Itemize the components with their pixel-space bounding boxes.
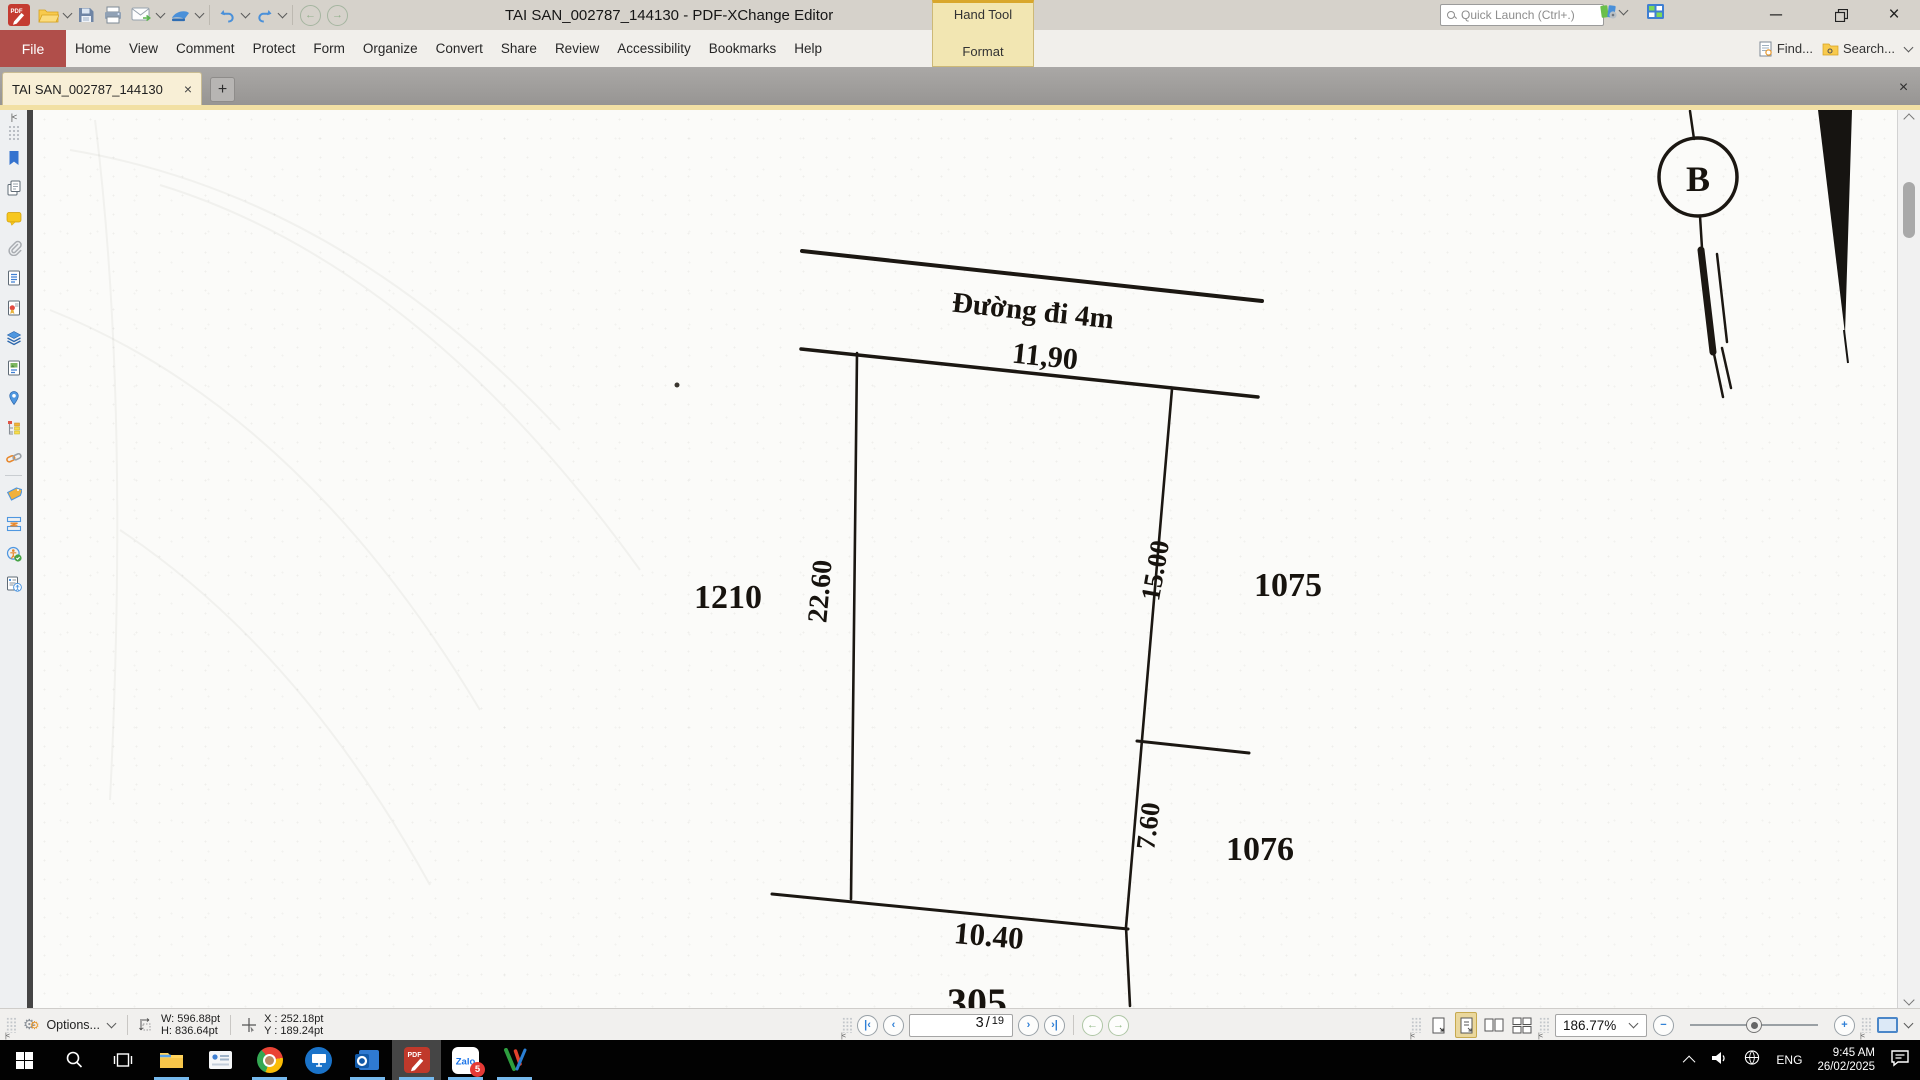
- scan-wedge-mark: [1818, 110, 1852, 334]
- selection-size-readout: W: 596.88pt H: 836.64pt: [161, 1013, 220, 1037]
- window-title: TAI SAN_002787_144130 - PDF-XChange Edit…: [505, 7, 833, 24]
- hand-tool-label[interactable]: Hand Tool: [954, 7, 1012, 22]
- status-drag-handle[interactable]: [6, 1017, 16, 1033]
- search-icon: [1447, 11, 1456, 20]
- width-readout: W: 596.88pt: [161, 1013, 220, 1025]
- dimension-top: 11,90: [1011, 337, 1080, 377]
- dimension-bottom: 10.40: [953, 915, 1026, 956]
- menu-home[interactable]: Home: [66, 41, 120, 56]
- find-button[interactable]: Find...: [1759, 41, 1813, 57]
- zalo-badge: 5: [470, 1062, 485, 1077]
- page-number-input[interactable]: 3 / 19: [909, 1014, 1013, 1037]
- windows-taskbar: PDF Zalo 5 ENG 9:45 AM 26/02/2025: [0, 1040, 1920, 1080]
- thumbnails-icon[interactable]: [5, 179, 23, 197]
- stamp-dropdown-chevron[interactable]: [195, 9, 205, 19]
- taskbar-search-icon[interactable]: [49, 1040, 98, 1080]
- quick-launch-placeholder: Quick Launch (Ctrl+.): [1461, 8, 1575, 22]
- tab-close-icon[interactable]: ×: [184, 82, 192, 96]
- total-pages: 19: [992, 1015, 1004, 1027]
- ink-mark-thin-1: [1717, 254, 1727, 342]
- toolbar-separator: [292, 5, 293, 25]
- content-icon[interactable]: [5, 359, 23, 377]
- content-order-icon[interactable]: [5, 515, 23, 533]
- fields-icon[interactable]: [5, 269, 23, 287]
- document-tab-title: TAI SAN_002787_144130: [12, 82, 163, 97]
- save-icon[interactable]: [73, 3, 99, 27]
- links-icon[interactable]: [5, 449, 23, 467]
- outlook-icon[interactable]: [343, 1040, 392, 1080]
- document-page[interactable]: Đường đi 4m 11,90 22.60 15.00 7.60 10.40…: [33, 110, 1897, 1008]
- layers-icon[interactable]: [5, 329, 23, 347]
- app-logo-icon: PDF: [4, 3, 34, 27]
- cursor-position-icon: [241, 1017, 257, 1033]
- bookmarks-icon[interactable]: [5, 149, 23, 167]
- main-area: |<: [0, 110, 1920, 1008]
- two-page-layout-button[interactable]: [1483, 1012, 1505, 1038]
- menu-form[interactable]: Form: [304, 41, 354, 56]
- menu-protect[interactable]: Protect: [244, 41, 305, 56]
- close-button[interactable]: ×: [1872, 0, 1916, 30]
- structure-icon[interactable]: [5, 419, 23, 437]
- tabbar-close-icon[interactable]: ×: [1892, 76, 1915, 99]
- svg-text:PDF: PDF: [407, 1052, 422, 1059]
- parcel-number-bottom-clipped: 305: [947, 980, 1007, 1008]
- dimension-right-upper: 15.00: [1135, 538, 1175, 603]
- session-icon[interactable]: [1646, 3, 1665, 20]
- options-button[interactable]: Options...: [46, 1018, 100, 1032]
- redo-dropdown-chevron[interactable]: [278, 9, 288, 19]
- find-search-group: Find... Search...: [1759, 30, 1914, 67]
- task-view-icon[interactable]: [98, 1040, 147, 1080]
- continuous-layout-button[interactable]: [1455, 1012, 1477, 1038]
- options-chevron[interactable]: [106, 1019, 116, 1029]
- attachments-icon[interactable]: [5, 239, 23, 257]
- gear-icon: ⚙⚙: [23, 1017, 39, 1033]
- scan-wedge-tail: [1844, 330, 1848, 363]
- document-tab[interactable]: TAI SAN_002787_144130 ×: [2, 72, 202, 105]
- toolbar-overflow-chevron[interactable]: [1904, 42, 1914, 52]
- print-icon[interactable]: [99, 3, 127, 27]
- destinations-icon[interactable]: [5, 389, 23, 407]
- page-navigation-group: |‹ ‹ 3 / 19 › ›| ← →: [842, 1009, 1129, 1041]
- stamp-tool-icon[interactable]: [166, 3, 195, 27]
- zalo-icon[interactable]: Zalo 5: [441, 1040, 490, 1080]
- zoom-out-button[interactable]: −: [1653, 1015, 1674, 1036]
- menu-bookmarks[interactable]: Bookmarks: [700, 41, 786, 56]
- menu-share[interactable]: Share: [492, 41, 546, 56]
- fullscreen-mode-icon[interactable]: [1877, 1017, 1898, 1033]
- new-tab-button[interactable]: +: [210, 77, 235, 102]
- signatures-icon[interactable]: [5, 299, 23, 317]
- pdf-xchange-window: PDF ←: [0, 0, 1920, 1080]
- zoom-level-value: 186.77%: [1563, 1018, 1616, 1033]
- file-explorer-icon[interactable]: [147, 1040, 196, 1080]
- search-button[interactable]: Search...: [1822, 41, 1895, 56]
- clock-time: 9:45 AM: [1833, 1047, 1875, 1059]
- history-forward-icon[interactable]: →: [327, 5, 348, 26]
- undo-icon[interactable]: [214, 3, 241, 27]
- panel-collapse-icon[interactable]: |<: [11, 112, 17, 122]
- menu-view[interactable]: View: [120, 41, 167, 56]
- taskbar-clock[interactable]: 9:45 AM 26/02/2025: [1817, 1046, 1875, 1074]
- hidden-icons-chevron[interactable]: [1683, 1055, 1696, 1068]
- office-v-app-icon[interactable]: [490, 1040, 539, 1080]
- node-upper-line: [1690, 111, 1694, 139]
- y-readout: Y : 189.24pt: [264, 1025, 323, 1037]
- panel-divider: [5, 475, 22, 476]
- ink-mark-thick: [1701, 250, 1713, 352]
- undo-dropdown-chevron[interactable]: [241, 9, 251, 19]
- road-upper-edge-line: [802, 251, 1262, 301]
- open-dropdown-chevron[interactable]: [63, 9, 73, 19]
- ui-options-chevron[interactable]: [1619, 5, 1629, 15]
- menu-comment[interactable]: Comment: [167, 41, 244, 56]
- active-tool-box: Hand Tool Format: [932, 0, 1034, 67]
- volume-icon[interactable]: [1710, 1050, 1728, 1071]
- zoom-slider[interactable]: [1690, 1024, 1818, 1026]
- scrollbar-thumb[interactable]: [1903, 182, 1915, 238]
- dimension-right-lower: 7.60: [1130, 801, 1166, 852]
- vertical-scrollbar[interactable]: [1897, 110, 1920, 1008]
- page-separator: /: [986, 1015, 990, 1031]
- nav-drag-handle[interactable]: [842, 1017, 852, 1033]
- email-icon[interactable]: [127, 3, 156, 27]
- ink-mark-thin-3: [1722, 348, 1731, 388]
- find-page-icon: [1759, 41, 1773, 57]
- view-back-button[interactable]: ←: [1082, 1015, 1103, 1036]
- parcel-right-boundary-line: [1126, 389, 1172, 1006]
- left-panel-bar: |<: [0, 110, 27, 1008]
- menu-file[interactable]: File: [0, 30, 66, 67]
- view-drag-handle[interactable]: [1861, 1017, 1871, 1033]
- parcel-left-boundary-line: [851, 353, 857, 899]
- remote-desktop-app-icon[interactable]: [294, 1040, 343, 1080]
- first-page-button[interactable]: |‹: [857, 1015, 878, 1036]
- menu-help[interactable]: Help: [785, 41, 831, 56]
- scroll-up-icon[interactable]: [1903, 113, 1914, 124]
- clock-date: 26/02/2025: [1817, 1061, 1875, 1073]
- toolbar-separator: [209, 5, 210, 25]
- restore-button[interactable]: [1819, 0, 1863, 30]
- fullscreen-chevron[interactable]: [1904, 1019, 1914, 1029]
- menu-organize[interactable]: Organize: [354, 41, 427, 56]
- minimize-button[interactable]: ─: [1754, 0, 1798, 30]
- parcel-number-left: 1210: [694, 579, 762, 616]
- survey-node-label: B: [1686, 159, 1710, 199]
- size-readout-icon: [138, 1017, 154, 1033]
- menu-review[interactable]: Review: [546, 41, 608, 56]
- parcel-number-right-upper: 1075: [1254, 567, 1322, 604]
- ui-options-icon[interactable]: [1600, 3, 1629, 20]
- stray-dot: [675, 383, 680, 388]
- history-back-icon[interactable]: ←: [300, 5, 321, 26]
- pdf-xchange-taskbar-icon[interactable]: PDF: [392, 1040, 441, 1080]
- road-name-label: Đường đi 4m: [951, 287, 1116, 336]
- layout-drag-handle[interactable]: [1411, 1017, 1421, 1033]
- status-left-group: ⚙⚙ Options... W: 596.88pt H: 836.64pt X …: [6, 1009, 323, 1041]
- zoom-select-chevron: [1629, 1019, 1639, 1029]
- comments-icon[interactable]: [5, 209, 23, 227]
- language-indicator[interactable]: ENG: [1776, 1053, 1802, 1067]
- last-page-button[interactable]: ›|: [1044, 1015, 1065, 1036]
- panel-drag-handle[interactable]: [8, 125, 20, 140]
- x-readout: X : 252.18pt: [264, 1013, 323, 1025]
- parcel-number-right-lower: 1076: [1226, 831, 1294, 868]
- scroll-down-icon[interactable]: [1903, 994, 1914, 1005]
- menu-accessibility[interactable]: Accessibility: [608, 41, 700, 56]
- node-lower-line: [1700, 216, 1702, 248]
- tags-icon[interactable]: [5, 485, 23, 503]
- next-page-button[interactable]: ›: [1018, 1015, 1039, 1036]
- accessibility-check-icon[interactable]: [5, 545, 23, 563]
- menu-convert[interactable]: Convert: [427, 41, 492, 56]
- accessibility-tags-icon[interactable]: [5, 575, 23, 593]
- open-folder-icon[interactable]: [34, 3, 63, 27]
- zoom-layout-group: 186.77% − +: [1411, 1009, 1914, 1041]
- network-icon[interactable]: [1743, 1049, 1761, 1071]
- format-tab[interactable]: Format: [962, 44, 1003, 59]
- system-tray: ENG 9:45 AM 26/02/2025: [1686, 1046, 1920, 1074]
- height-readout: H: 836.64pt: [161, 1025, 220, 1037]
- start-button[interactable]: [0, 1040, 49, 1080]
- document-tab-bar: TAI SAN_002787_144130 × + ×: [0, 67, 1920, 105]
- quick-launch-input[interactable]: Quick Launch (Ctrl+.): [1440, 4, 1604, 26]
- chrome-icon[interactable]: [245, 1040, 294, 1080]
- neighbor-division-tick-line: [1137, 741, 1249, 753]
- current-page: 3: [976, 1015, 984, 1031]
- two-page-continuous-layout-button[interactable]: [1511, 1012, 1533, 1038]
- quick-access-toolbar: PDF ←: [4, 2, 351, 28]
- previous-page-button[interactable]: ‹: [883, 1015, 904, 1036]
- menu-items: Home View Comment Protect Form Organize …: [66, 30, 831, 67]
- status-separator: [127, 1015, 128, 1035]
- email-dropdown-chevron[interactable]: [156, 9, 166, 19]
- zoom-in-button[interactable]: +: [1834, 1015, 1855, 1036]
- status-separator: [230, 1015, 231, 1035]
- zoom-drag-handle[interactable]: [1539, 1017, 1549, 1033]
- redo-icon[interactable]: [251, 3, 278, 27]
- scan-artifacts: [50, 120, 640, 885]
- status-separator: [1073, 1015, 1074, 1035]
- search-folder-icon: [1822, 42, 1839, 56]
- status-bar: ⚙⚙ Options... W: 596.88pt H: 836.64pt X …: [0, 1008, 1920, 1040]
- action-center-icon[interactable]: [1890, 1049, 1910, 1072]
- ink-mark-thin-2: [1714, 354, 1723, 397]
- view-forward-button[interactable]: →: [1108, 1015, 1129, 1036]
- parcel-bottom-boundary-line: [772, 894, 1128, 929]
- contacts-app-icon[interactable]: [196, 1040, 245, 1080]
- dimension-left: 22.60: [802, 559, 838, 624]
- single-page-layout-button[interactable]: [1427, 1012, 1449, 1038]
- zoom-slider-thumb[interactable]: [1746, 1017, 1762, 1033]
- cursor-position-readout: X : 252.18pt Y : 189.24pt: [264, 1013, 323, 1037]
- zoom-level-select[interactable]: 186.77%: [1555, 1014, 1647, 1037]
- cadastral-survey-drawing: Đường đi 4m 11,90 22.60 15.00 7.60 10.40…: [33, 110, 1897, 1008]
